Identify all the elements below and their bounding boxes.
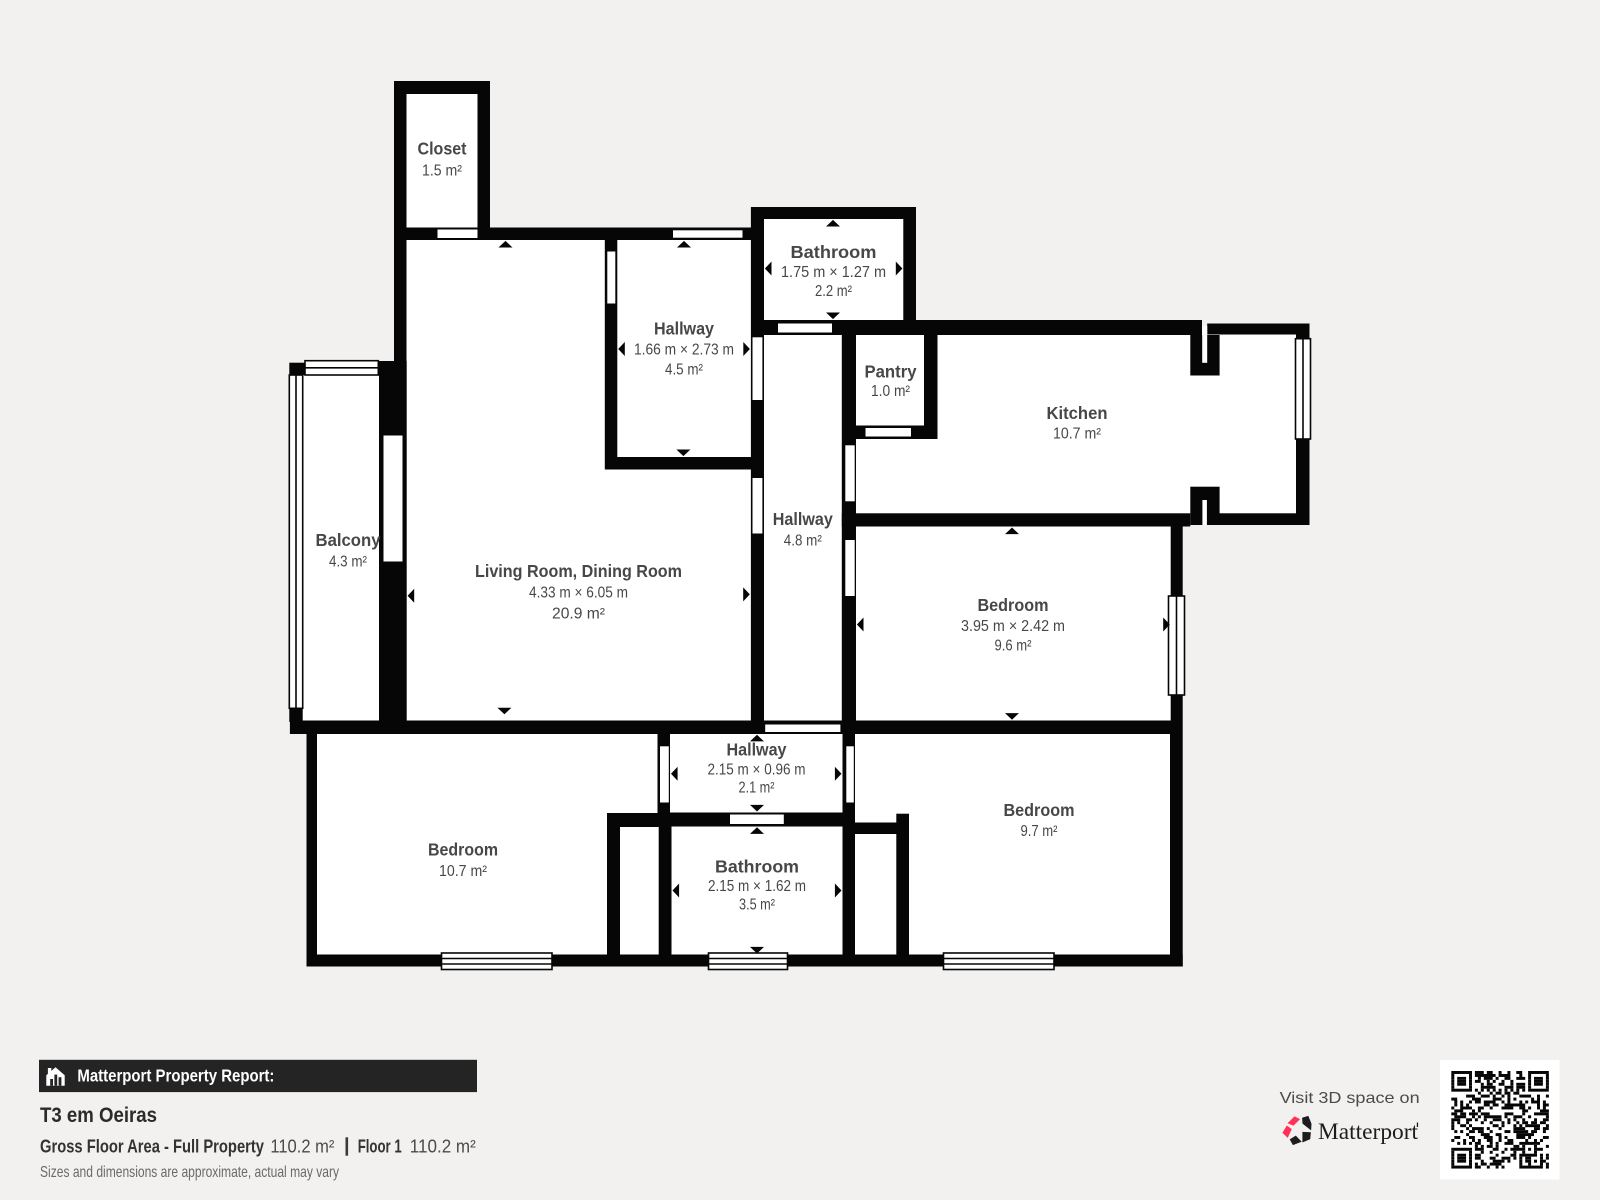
svg-text:Bathroom: Bathroom	[715, 857, 799, 877]
svg-text:Floor 1: Floor 1	[358, 1136, 402, 1156]
svg-text:Bedroom: Bedroom	[428, 840, 498, 860]
svg-text:Balcony: Balcony	[316, 530, 381, 550]
svg-text:1.66 m × 2.73 m: 1.66 m × 2.73 m	[634, 342, 734, 359]
svg-text:1.0 m²: 1.0 m²	[871, 383, 910, 400]
svg-text:Hallway: Hallway	[727, 740, 787, 760]
svg-text:Bedroom: Bedroom	[1004, 800, 1075, 820]
svg-text:Visit 3D space on: Visit 3D space on	[1280, 1090, 1420, 1107]
svg-text:2.2 m²: 2.2 m²	[815, 283, 852, 300]
svg-text:Bedroom: Bedroom	[978, 595, 1049, 615]
svg-text:Closet: Closet	[418, 139, 467, 159]
svg-text:Hallway: Hallway	[773, 509, 833, 529]
svg-text:Matterport Property Report:: Matterport Property Report:	[77, 1066, 274, 1086]
svg-text:Kitchen: Kitchen	[1047, 403, 1108, 423]
svg-text:10.7 m²: 10.7 m²	[1053, 426, 1101, 443]
svg-text:Living Room, Dining Room: Living Room, Dining Room	[475, 561, 682, 581]
svg-text:Hallway: Hallway	[654, 319, 714, 339]
svg-text:Sizes and dimensions are appro: Sizes and dimensions are approximate, ac…	[40, 1164, 339, 1181]
svg-text:Bathroom: Bathroom	[791, 242, 877, 262]
svg-text:4.3 m²: 4.3 m²	[329, 554, 367, 571]
svg-text:T3 em Oeiras: T3 em Oeiras	[40, 1104, 157, 1127]
svg-text:9.6 m²: 9.6 m²	[995, 638, 1032, 655]
svg-text:4.33 m × 6.05 m: 4.33 m × 6.05 m	[529, 585, 628, 602]
svg-text:20.9 m²: 20.9 m²	[552, 606, 605, 623]
svg-text:1.75 m × 1.27 m: 1.75 m × 1.27 m	[781, 264, 886, 281]
svg-text:1.5 m²: 1.5 m²	[422, 163, 462, 180]
svg-text:Gross Floor Area - Full Proper: Gross Floor Area - Full Property	[40, 1136, 264, 1156]
svg-text:10.7 m²: 10.7 m²	[439, 863, 487, 880]
svg-text:3.95 m × 2.42 m: 3.95 m × 2.42 m	[961, 618, 1065, 635]
svg-text:2.1 m²: 2.1 m²	[739, 780, 775, 797]
svg-text:Pantry: Pantry	[865, 362, 917, 382]
svg-text:4.8 m²: 4.8 m²	[784, 533, 822, 550]
svg-text:2.15 m × 0.96 m: 2.15 m × 0.96 m	[708, 762, 806, 779]
svg-text:110.2 m²: 110.2 m²	[410, 1136, 476, 1156]
svg-text:110.2 m²: 110.2 m²	[270, 1136, 334, 1156]
svg-text:9.7 m²: 9.7 m²	[1021, 823, 1058, 840]
svg-text:3.5 m²: 3.5 m²	[739, 897, 775, 914]
svg-text:4.5 m²: 4.5 m²	[665, 362, 703, 379]
svg-text:2.15 m × 1.62 m: 2.15 m × 1.62 m	[708, 878, 806, 895]
svg-text:Matterport: Matterport	[1318, 1119, 1419, 1144]
